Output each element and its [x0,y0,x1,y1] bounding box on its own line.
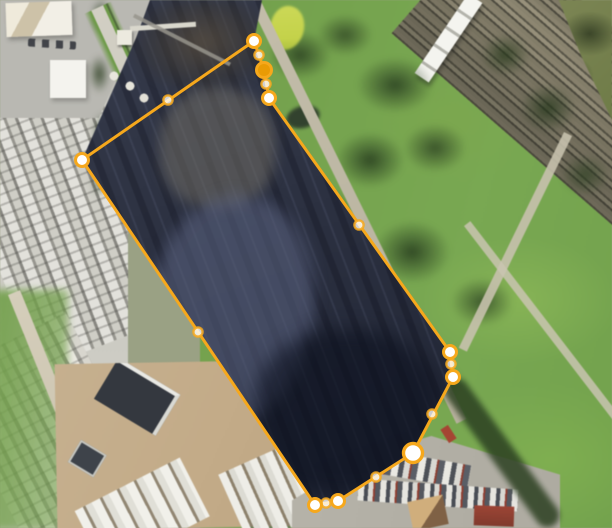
polygon-midpoint-handle[interactable] [254,50,263,59]
polygon-midpoint-handle[interactable] [261,79,270,88]
polygon-vertex-handle[interactable] [404,444,423,463]
polygon-midpoint-handle[interactable] [163,95,172,104]
polygon-midpoint-handle[interactable] [371,472,380,481]
polygon-vertex-handle[interactable] [444,346,457,359]
polygon-midpoint-handle[interactable] [354,220,363,229]
polygon-vertex-handle[interactable] [309,499,322,512]
map-canvas[interactable] [0,0,612,528]
polygon-vertex-handle[interactable] [447,371,460,384]
polygon-midpoint-handle[interactable] [446,359,455,368]
polygon-vertex-selected[interactable] [257,63,272,78]
polygon-vertex-handle[interactable] [76,154,89,167]
polygon-midpoint-handle[interactable] [427,409,436,418]
polygon-vertex-handle[interactable] [332,495,345,508]
polygon-overlay [0,0,612,528]
polygon-midpoint-handle[interactable] [193,327,202,336]
polygon-vertex-handle[interactable] [248,35,261,48]
polygon-vertex-handle[interactable] [263,92,276,105]
polygon-outline[interactable] [82,41,453,505]
